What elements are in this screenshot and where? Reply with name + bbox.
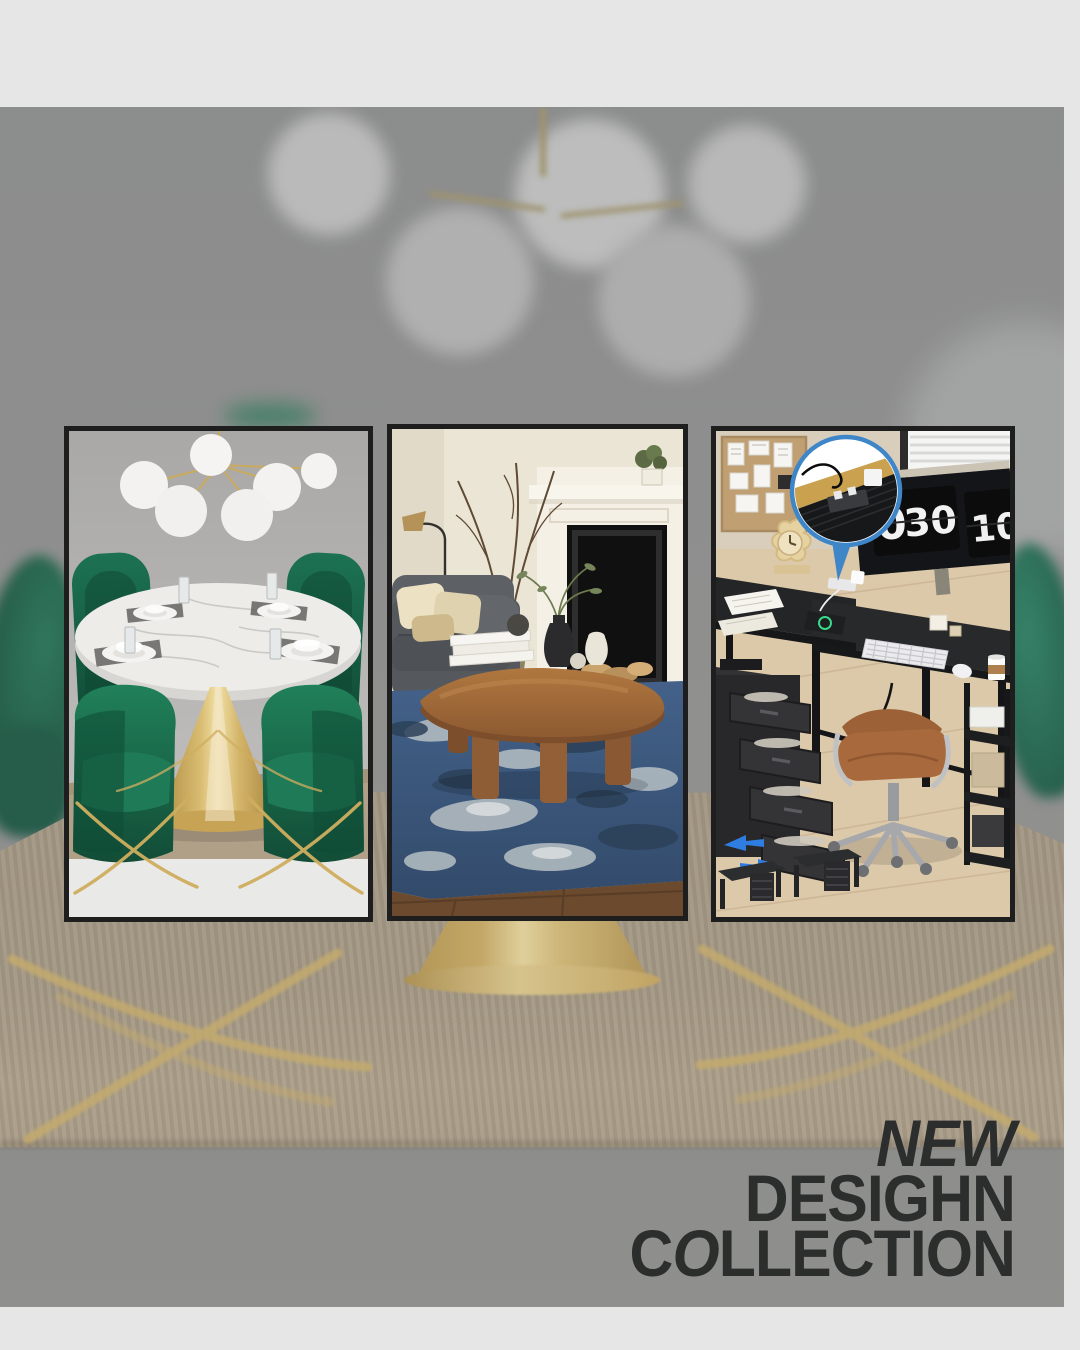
clay-ball-decor (507, 614, 529, 636)
headline-line-collection: COLLECTION (630, 1226, 1015, 1281)
coffee-table (420, 668, 664, 803)
poster-canvas: { "headline": { "line1": "NEW", "line2":… (0, 0, 1080, 1350)
dining-set-photo (69, 431, 368, 917)
white-vase (585, 632, 608, 665)
product-panel-dining-set (64, 426, 373, 922)
clock-right-digits: 10 (969, 506, 1010, 551)
headline: NEW DESIGHN COLLECTION (630, 1116, 1015, 1281)
product-panel-l-desk: 0 30 10 (711, 426, 1015, 922)
sphere-vase (570, 653, 586, 669)
product-panel-living-room-rug (387, 424, 688, 921)
coffee-cup (988, 654, 1005, 680)
living-room-photo (392, 429, 683, 916)
office-desk-photo: 0 30 10 (716, 431, 1010, 917)
